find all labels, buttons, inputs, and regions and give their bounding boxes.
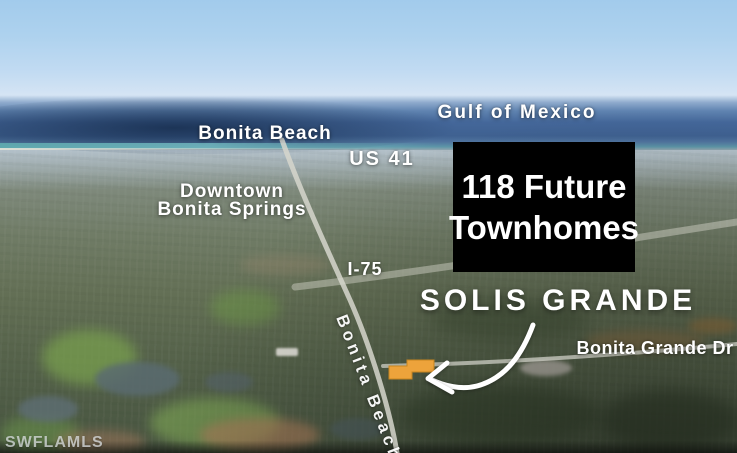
label-downtown-line2: Bonita Springs [157, 201, 306, 219]
label-bonita-grande-dr: Bonita Grande Dr [576, 338, 733, 359]
label-bonita-beach: Bonita Beach [198, 123, 331, 145]
label-i-75: I-75 [347, 259, 382, 280]
label-downtown-bonita-springs: Downtown Bonita Springs [157, 183, 306, 219]
callout-line2: Townhomes [449, 207, 639, 248]
mls-watermark: SWFLAMLS [5, 434, 104, 452]
label-gulf-of-mexico: Gulf of Mexico [438, 102, 597, 124]
aerial-map-scene: Gulf of Mexico Bonita Beach US 41 Downto… [0, 0, 737, 453]
townhomes-callout-box: 118 Future Townhomes [453, 142, 635, 272]
location-arrow-curve [430, 325, 533, 388]
label-us-41: US 41 [349, 148, 415, 171]
callout-line1: 118 Future [461, 166, 626, 207]
project-title: SOLIS GRANDE [420, 284, 696, 318]
